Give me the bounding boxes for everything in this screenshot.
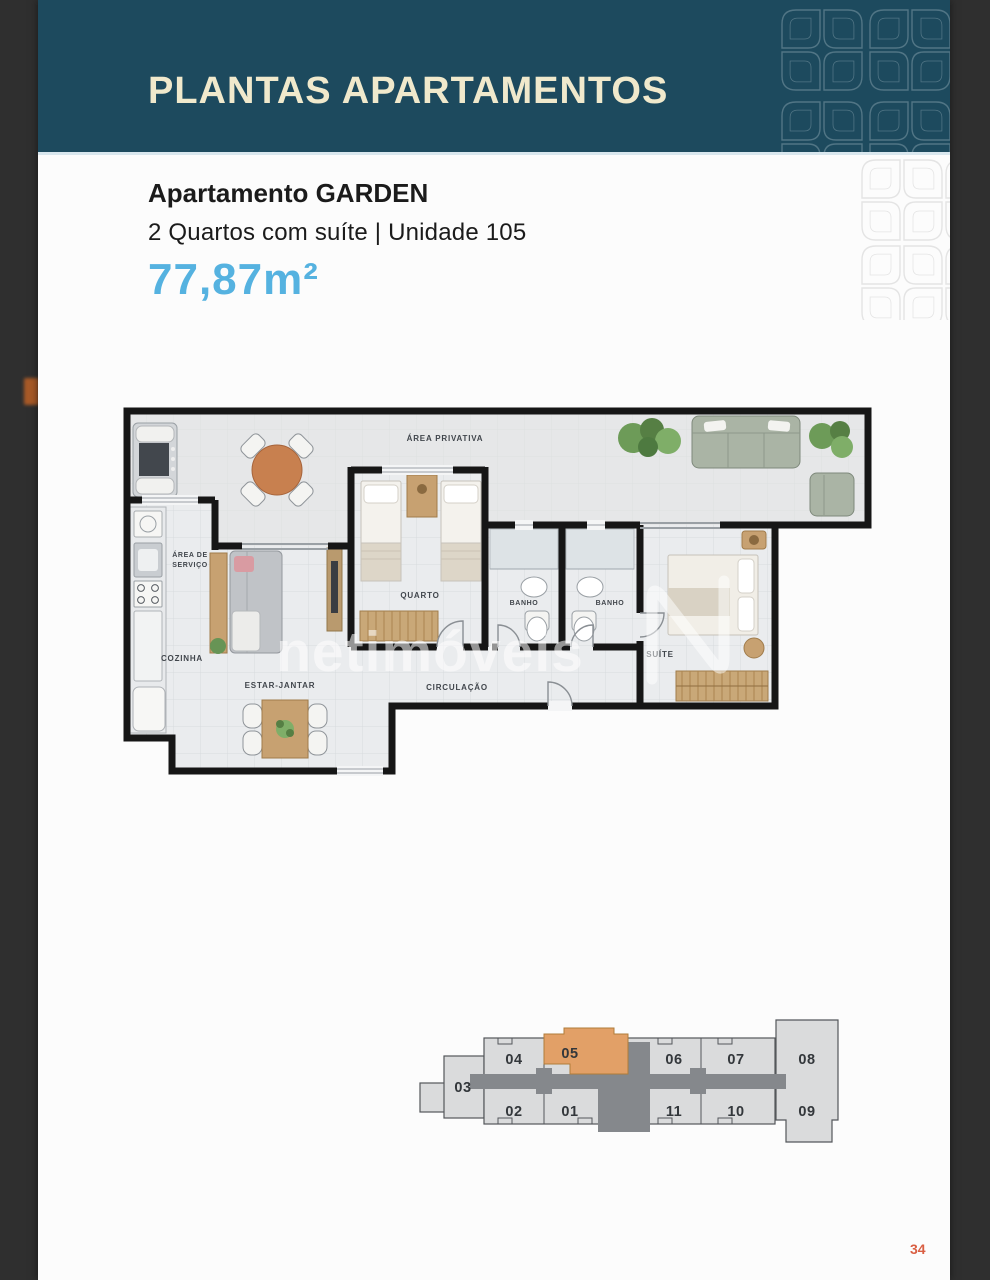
- label-area-de: ÁREA DE: [172, 550, 207, 559]
- label-area-privativa: ÁREA PRIVATIVA: [407, 434, 484, 443]
- grill-icon: [133, 423, 177, 497]
- unit-label: 09: [798, 1104, 815, 1120]
- unit-label: 08: [798, 1052, 815, 1068]
- page-header: PLANTAS APARTAMENTOS: [38, 0, 950, 155]
- apartment-area: 77,87m²: [148, 255, 526, 305]
- unit-label: 10: [727, 1104, 744, 1120]
- label-cozinha: COZINHA: [161, 654, 203, 663]
- unit-label: 07: [727, 1052, 744, 1068]
- label-banho-1: BANHO: [510, 600, 539, 607]
- label-banho-2: BANHO: [596, 600, 625, 607]
- tv-panel-icon: [327, 548, 342, 631]
- terrace-sofa-icon: [692, 416, 800, 468]
- watermark-text: netimóveis: [276, 620, 584, 684]
- flower-pattern-header: [780, 0, 950, 152]
- apartment-title: Apartamento GARDEN: [148, 178, 526, 209]
- unit-label: 06: [665, 1052, 682, 1068]
- apartment-subtitle: 2 Quartos com suíte | Unidade 105: [148, 219, 526, 247]
- wardrobe-icon: [676, 671, 768, 701]
- unit-label: 01: [561, 1104, 578, 1120]
- label-servico: SERVIÇO: [172, 562, 208, 569]
- unit-label: 11: [666, 1104, 682, 1120]
- screenshot-canvas: PLANTAS APARTAMENTOS Apartamento GARDEN …: [0, 0, 990, 1280]
- unit-label: 05: [561, 1046, 578, 1062]
- bed-icon: [441, 481, 481, 581]
- previous-page-peek: [24, 378, 39, 405]
- flower-pattern-body: [860, 158, 950, 320]
- floor-plan: ÁREA PRIVATIVA ÁREA DE SERVIÇO QUARTO BA…: [120, 403, 872, 795]
- label-circulacao: CIRCULAÇÃO: [426, 683, 488, 692]
- unit-label: 04: [505, 1052, 522, 1068]
- label-quarto: QUARTO: [400, 591, 439, 600]
- kitchen-furniture: [130, 507, 166, 733]
- unit-label: 03: [454, 1080, 471, 1096]
- brochure-page: PLANTAS APARTAMENTOS Apartamento GARDEN …: [38, 0, 950, 1280]
- armchair-icon: [810, 473, 854, 516]
- bed-icon: [361, 481, 401, 581]
- page-title: PLANTAS APARTAMENTOS: [148, 70, 668, 113]
- page-number: 34: [910, 1241, 926, 1257]
- unit-location-map: 03 04 05 06 07 08 02 01 11 10 09: [418, 1012, 848, 1147]
- apartment-info: Apartamento GARDEN 2 Quartos com suíte |…: [148, 178, 526, 305]
- sofa-icon: [230, 551, 282, 653]
- unit-label: 02: [505, 1104, 522, 1120]
